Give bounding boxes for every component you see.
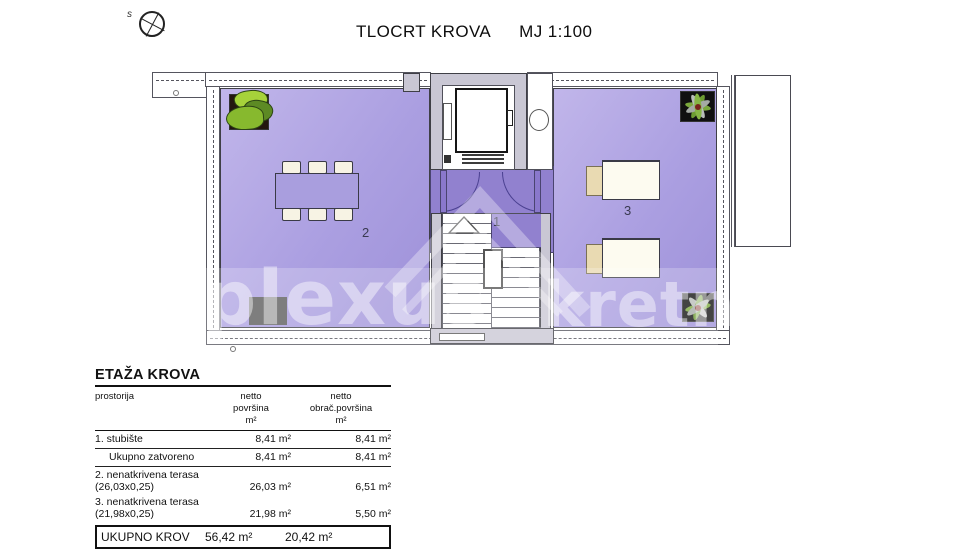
compass-line bbox=[146, 12, 160, 36]
table-row: 2. nenatkrivena terasa (26,03x0,25) 26,0… bbox=[95, 467, 391, 494]
adjacent-roof bbox=[735, 75, 791, 247]
elevator-door-tab bbox=[507, 110, 513, 126]
row-netto: 21,98 m² bbox=[211, 508, 291, 520]
north-compass-icon bbox=[139, 11, 165, 37]
railing-right bbox=[716, 86, 730, 332]
sun-lounger bbox=[602, 160, 660, 200]
survey-point bbox=[173, 90, 179, 96]
total-netto: 56,42 m² bbox=[205, 530, 285, 544]
dining-chair bbox=[308, 208, 327, 221]
total-obracun: 20,42 m² bbox=[285, 530, 385, 544]
railing-top-right bbox=[527, 72, 718, 87]
bush-foliage bbox=[225, 105, 265, 132]
column-header-room: prostorija bbox=[95, 391, 211, 403]
floor-plan: 1 2 3 plexus kretnin bbox=[150, 62, 795, 358]
palm-plant bbox=[680, 91, 715, 122]
table-row: 3. nenatkrivena terasa (21,98x0,25) 21,9… bbox=[95, 493, 391, 522]
elevator-shaft bbox=[455, 88, 508, 153]
area-table: ETAŽA KROVA prostorija netto površina m²… bbox=[95, 367, 391, 549]
row-name: 3. nenatkrivena terasa (21,98x0,25) bbox=[95, 496, 211, 520]
row-netto: 8,41 m² bbox=[211, 433, 291, 445]
table-row: 1. stubište 8,41 m² 8,41 m² bbox=[95, 431, 391, 449]
row-obracun: 8,41 m² bbox=[291, 451, 391, 463]
watermark-band bbox=[154, 268, 718, 346]
survey-point bbox=[230, 346, 236, 352]
room-label-stairs: 1 bbox=[493, 214, 500, 229]
total-label: UKUPNO KROV bbox=[101, 530, 205, 544]
room-label-terrace-left: 2 bbox=[362, 225, 369, 240]
area-table-title: ETAŽA KROVA bbox=[95, 367, 391, 387]
page-title: TLOCRT KROVA bbox=[356, 22, 491, 42]
wall-fixture bbox=[443, 103, 452, 140]
row-obracun: 5,50 m² bbox=[291, 508, 391, 520]
railing-top-left bbox=[205, 72, 431, 87]
row-name: Ukupno zatvoreno bbox=[95, 451, 211, 463]
dining-chair bbox=[334, 208, 353, 221]
door-leaf-right bbox=[534, 170, 541, 213]
area-table-header: prostorija netto površina m² netto obrač… bbox=[95, 387, 391, 431]
row-obracun: 6,51 m² bbox=[291, 481, 391, 493]
compass-north-label: s bbox=[127, 9, 132, 20]
door-leaf-left bbox=[440, 170, 447, 213]
table-row: Ukupno zatvoreno 8,41 m² 8,41 m² bbox=[95, 449, 391, 467]
round-table bbox=[529, 109, 549, 131]
railing-flag-topleft bbox=[152, 72, 208, 98]
stair-direction-arrow bbox=[447, 216, 481, 235]
table-total-row: UKUPNO KROV 56,42 m² 20,42 m² bbox=[95, 525, 391, 549]
column-header-obracun: netto obrač.površina m² bbox=[291, 391, 391, 427]
dining-chair bbox=[282, 208, 301, 221]
drawing-title-row: TLOCRT KROVA MJ 1:100 bbox=[356, 22, 592, 42]
column-header-netto: netto površina m² bbox=[211, 391, 291, 427]
dining-table bbox=[275, 173, 359, 209]
threshold-hatch bbox=[462, 154, 504, 164]
row-netto: 26,03 m² bbox=[211, 481, 291, 493]
small-fixture bbox=[444, 155, 451, 163]
wall-post bbox=[403, 73, 420, 92]
room-label-terrace-right: 3 bbox=[624, 203, 631, 218]
row-name: 2. nenatkrivena terasa (26,03x0,25) bbox=[95, 469, 211, 493]
row-name: 1. stubište bbox=[95, 433, 211, 445]
row-obracun: 8,41 m² bbox=[291, 433, 391, 445]
row-netto: 8,41 m² bbox=[211, 451, 291, 463]
scale-label: MJ 1:100 bbox=[519, 22, 592, 42]
